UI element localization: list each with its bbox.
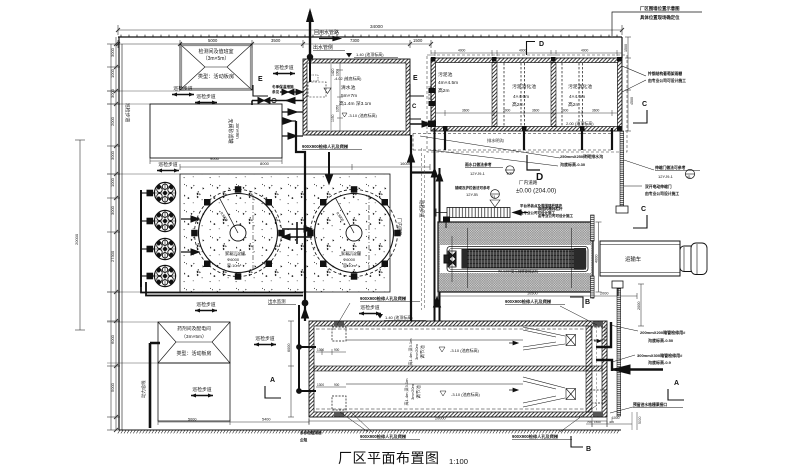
svg-text:5000: 5000: [638, 416, 642, 424]
svg-text:巡检步道: 巡检步道: [192, 386, 211, 393]
svg-text:3500: 3500: [271, 38, 281, 43]
svg-text:-3.10 (池底标高): -3.10 (池底标高): [450, 347, 480, 353]
svg-text:类型：活动板房: 类型：活动板房: [198, 72, 234, 80]
svg-text:4000: 4000: [519, 49, 527, 53]
svg-text:C: C: [641, 206, 646, 213]
svg-text:2000: 2000: [637, 302, 641, 310]
svg-text:絮凝沉淀罐: 絮凝沉淀罐: [225, 250, 245, 256]
svg-text:无阀砂滤罐: 无阀砂滤罐: [227, 118, 234, 143]
svg-text:9000: 9000: [210, 156, 220, 161]
svg-text:1000: 1000: [110, 68, 115, 78]
svg-text:高2m: 高2m: [512, 101, 523, 108]
svg-text:高1.4m 深3.1m: 高1.4m 深3.1m: [407, 338, 413, 366]
svg-text:预留进水格栅渠接口: 预留进水格栅渠接口: [633, 402, 667, 407]
svg-text:900X900检修人孔及爬梯: 900X900检修人孔及爬梯: [302, 143, 349, 150]
svg-text:B: B: [585, 299, 590, 306]
svg-text:调节池: 调节池: [419, 345, 426, 359]
svg-text:250mmX250砖砌排水沟: 250mmX250砖砌排水沟: [560, 153, 603, 159]
svg-text:E: E: [413, 75, 418, 82]
svg-text:5000: 5000: [188, 418, 196, 422]
svg-text:污泥池: 污泥池: [438, 71, 453, 78]
svg-text:300mmX300暗管检修用#: 300mmX300暗管检修用#: [637, 352, 683, 358]
svg-text:检测间及值班室: 检测间及值班室: [198, 48, 233, 55]
svg-text:4000: 4000: [581, 49, 589, 53]
svg-text:B: B: [586, 446, 591, 453]
svg-text:3600: 3600: [532, 109, 540, 113]
svg-text:2000: 2000: [110, 116, 115, 126]
svg-text:3m×20m: 3m×20m: [414, 344, 419, 360]
svg-text:巡检步道: 巡检步道: [418, 200, 425, 218]
svg-text:3000: 3000: [503, 109, 511, 113]
svg-text:C: C: [642, 101, 647, 108]
svg-text:巡检步道: 巡检步道: [196, 93, 215, 100]
svg-text:1:100: 1:100: [449, 457, 468, 466]
svg-text:巡检步道: 巡检步道: [274, 64, 293, 71]
svg-text:1300: 1300: [317, 383, 324, 387]
svg-text:由专业公司设计施工: 由专业公司设计施工: [645, 191, 679, 196]
svg-text:3600: 3600: [592, 109, 600, 113]
svg-text:74: 74: [492, 195, 496, 199]
svg-text:4000: 4000: [595, 255, 599, 263]
svg-text:C: C: [412, 104, 417, 110]
svg-text:5400: 5400: [262, 418, 270, 422]
svg-text:100: 100: [507, 172, 513, 176]
svg-text:900: 900: [334, 383, 340, 387]
svg-text:WLS260型无轴螺旋输送机: WLS260型无轴螺旋输送机: [498, 269, 539, 274]
svg-text:具体位置现场确定位: 具体位置现场确定位: [640, 14, 680, 21]
svg-text:3000: 3000: [110, 150, 115, 160]
svg-text:12YJ9-1: 12YJ9-1: [470, 171, 486, 176]
svg-text:3600: 3600: [462, 109, 470, 113]
svg-text:厂区平面布置图: 厂区平面布置图: [338, 450, 440, 466]
svg-text:巡检步道: 巡检步道: [196, 301, 215, 308]
svg-text:1500: 1500: [624, 44, 628, 52]
svg-text:参参相粗隔栅: 参参相粗隔栅: [299, 430, 322, 435]
svg-text:伸缩门做法可参考: 伸缩门做法可参考: [654, 165, 686, 170]
svg-text:絮凝沉淀罐: 絮凝沉淀罐: [341, 250, 361, 256]
svg-text:3000: 3000: [110, 88, 115, 98]
svg-text:12YJ9-1: 12YJ9-1: [658, 174, 674, 179]
svg-text:厂内道路: 厂内道路: [519, 179, 538, 186]
svg-text:A: A: [674, 380, 679, 387]
svg-text:1000: 1000: [612, 416, 620, 420]
svg-text:1420: 1420: [331, 68, 335, 76]
svg-text:7300: 7300: [350, 38, 360, 43]
svg-text:类型：活动板房: 类型：活动板房: [176, 350, 211, 357]
svg-text:4×4.6m: 4×4.6m: [569, 94, 585, 100]
svg-text:铺砌及护栏做法可参考: 铺砌及护栏做法可参考: [455, 185, 490, 190]
svg-text:回用水管路: 回用水管路: [314, 29, 339, 36]
svg-text:（3m×5m）: （3m×5m）: [203, 56, 230, 62]
svg-text:钢结构楼梯栏杆: 钢结构楼梯栏杆: [538, 206, 563, 211]
svg-text:调节池: 调节池: [415, 385, 422, 399]
svg-text:由专业公司可设计施工: 由专业公司可设计施工: [538, 213, 573, 218]
svg-text:2.00 (池顶标高): 2.00 (池顶标高): [566, 120, 594, 126]
svg-text:高1.4m 深3.1m: 高1.4m 深3.1m: [403, 378, 409, 406]
svg-text:900X900检修人孔及爬梯: 900X900检修人孔及爬梯: [512, 433, 559, 440]
svg-text:3000: 3000: [110, 205, 115, 215]
svg-text:-3.10 (池底标高): -3.10 (池底标高): [348, 112, 378, 118]
svg-text:污泥消化池: 污泥消化池: [568, 83, 592, 90]
svg-text:41: 41: [687, 175, 691, 179]
svg-text:4×4.6m: 4×4.6m: [513, 94, 529, 100]
svg-text:700: 700: [587, 420, 592, 424]
svg-text:1.40 (池顶标高): 1.40 (池顶标高): [356, 51, 384, 57]
svg-text:4m×4.5m: 4m×4.5m: [438, 80, 458, 86]
svg-text:拎钢结构葡萄架雨棚: 拎钢结构葡萄架雨棚: [648, 71, 682, 76]
svg-text:沟底标高-0.50: 沟底标高-0.50: [648, 337, 674, 343]
svg-text:厂区围墙位置示意图: 厂区围墙位置示意图: [640, 5, 680, 12]
svg-text:34000: 34000: [370, 24, 383, 29]
svg-text:巡检步道: 巡检步道: [255, 335, 274, 342]
svg-text:20000: 20000: [435, 417, 446, 421]
svg-text:4500: 4500: [630, 97, 634, 105]
svg-text:20000: 20000: [74, 233, 79, 245]
svg-text:3000: 3000: [561, 109, 569, 113]
svg-text:1.40 (池顶标高): 1.40 (池顶标高): [385, 314, 413, 320]
svg-text:动力总线: 动力总线: [140, 380, 147, 398]
svg-text:高1.4m 深3.1m: 高1.4m 深3.1m: [339, 100, 371, 107]
svg-text:D: D: [539, 41, 544, 48]
svg-text:巡检步道: 巡检步道: [360, 304, 379, 311]
svg-text:冬季保温措施: 冬季保温措施: [272, 84, 294, 89]
svg-text:1500: 1500: [594, 420, 601, 424]
svg-text:-3.10 (池底标高): -3.10 (池底标高): [451, 391, 481, 397]
svg-text:（3m×5m）: （3m×5m）: [181, 334, 207, 340]
svg-text:排水明沟: 排水明沟: [487, 137, 504, 144]
svg-text:厂内道路: 厂内道路: [396, 218, 403, 236]
svg-text:巡检步道: 巡检步道: [173, 85, 192, 92]
svg-text:A: A: [270, 377, 275, 384]
svg-text:雨水口做法参考: 雨水口做法参考: [465, 162, 492, 167]
svg-text:4000: 4000: [458, 49, 466, 53]
svg-text:1300: 1300: [317, 348, 324, 352]
svg-text:由专业公司可设计施工: 由专业公司可设计施工: [648, 78, 686, 83]
svg-text:容:10m³: 容:10m³: [227, 262, 242, 268]
svg-text:出水监测: 出水监测: [268, 298, 286, 305]
svg-text:-4.02 (锥底标高): -4.02 (锥底标高): [334, 76, 362, 81]
svg-text:Φ6000: Φ6000: [343, 257, 356, 262]
svg-text:5m×7m: 5m×7m: [341, 93, 357, 99]
svg-text:10500: 10500: [527, 292, 538, 296]
svg-text:6000: 6000: [287, 344, 291, 352]
svg-text:3000: 3000: [110, 47, 115, 57]
svg-text:1500: 1500: [413, 38, 423, 43]
svg-text:1000: 1000: [110, 177, 115, 187]
svg-text:5000: 5000: [208, 38, 218, 43]
svg-text:900X900检修人孔及爬梯: 900X900检修人孔及爬梯: [505, 298, 552, 305]
svg-text:8000: 8000: [260, 161, 270, 166]
svg-text:12YJB: 12YJB: [466, 192, 478, 197]
svg-text:5000: 5000: [110, 382, 115, 392]
svg-text:企阻: 企阻: [299, 437, 308, 442]
svg-text:容:10m³: 容:10m³: [343, 262, 358, 268]
svg-text:900X900检修人孔及爬梯: 900X900检修人孔及爬梯: [360, 295, 407, 302]
svg-text:27300: 27300: [110, 250, 115, 262]
svg-text:6000: 6000: [110, 334, 115, 344]
svg-text:双开电动伸缩门: 双开电动伸缩门: [644, 184, 672, 189]
svg-text:高2m: 高2m: [438, 87, 449, 94]
svg-text:±0.00 (204.00): ±0.00 (204.00): [516, 188, 556, 195]
svg-text:3m×9m: 3m×9m: [235, 123, 240, 139]
svg-text:巡检步道: 巡检步道: [158, 161, 177, 168]
svg-text:参见: 参见: [271, 89, 280, 94]
svg-text:沟底标高-0.30: 沟底标高-0.30: [560, 161, 586, 167]
svg-text:1000: 1000: [336, 69, 340, 76]
svg-text:900: 900: [334, 348, 340, 352]
svg-text:400: 400: [609, 420, 614, 424]
svg-text:E: E: [258, 76, 263, 83]
svg-text:巡检步道: 巡检步道: [124, 103, 131, 122]
svg-text:高2m: 高2m: [568, 101, 579, 108]
svg-text:污泥消化池: 污泥消化池: [512, 83, 536, 90]
svg-text:Φ6000: Φ6000: [227, 257, 240, 262]
svg-text:清水池: 清水池: [341, 84, 356, 91]
svg-text:运输车: 运输车: [625, 255, 642, 263]
svg-text:900X900检修人孔及爬梯: 900X900检修人孔及爬梯: [360, 433, 407, 440]
svg-text:沟底标高-0.9: 沟底标高-0.9: [648, 359, 672, 365]
svg-text:药剂间及配电间: 药剂间及配电间: [177, 325, 211, 332]
svg-text:200mmX200暗管检修用#: 200mmX200暗管检修用#: [640, 329, 686, 335]
svg-text:出水管侧: 出水管侧: [313, 44, 333, 51]
svg-text:1050: 1050: [331, 114, 335, 122]
svg-text:3m×20m: 3m×20m: [410, 384, 415, 400]
